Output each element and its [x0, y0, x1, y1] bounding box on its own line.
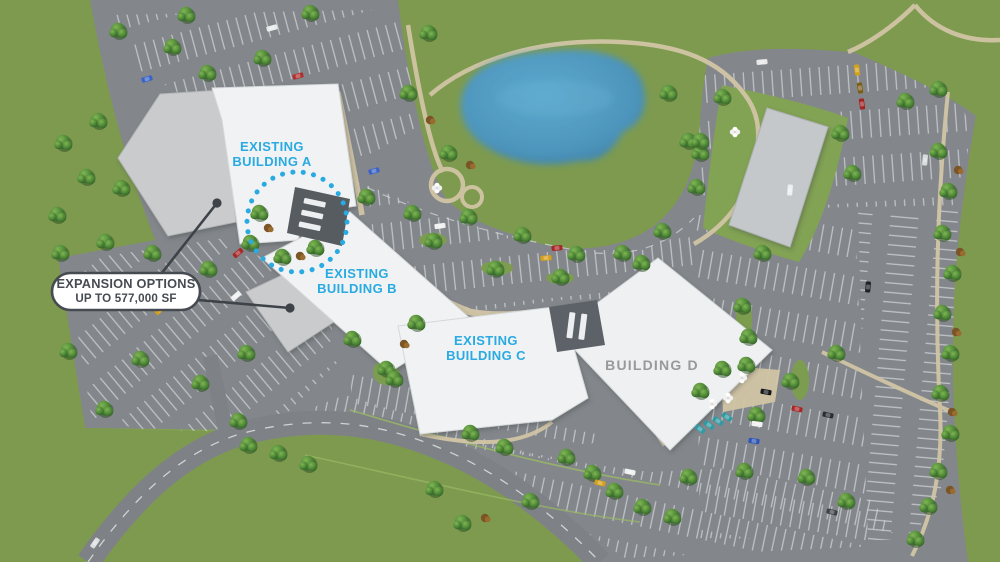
- building-c-label-line1: EXISTING: [454, 333, 518, 348]
- building-a-label: EXISTING BUILDING A: [232, 139, 312, 169]
- callout-subtitle: UP TO 577,000 SF: [75, 292, 176, 305]
- building-b-label: EXISTING BUILDING B: [317, 266, 397, 296]
- building-d-label: BUILDING D: [605, 357, 699, 373]
- callout-endpoint-dot-2: [285, 303, 294, 312]
- loading-dock-cd: [549, 300, 605, 352]
- callout-endpoint-dot-1: [212, 198, 221, 207]
- building-b-label-line2: BUILDING B: [317, 281, 397, 296]
- building-c-label: EXISTING BUILDING C: [446, 333, 526, 363]
- building-c-label-line2: BUILDING C: [446, 348, 526, 363]
- callout-title: EXPANSION OPTIONS: [57, 276, 196, 291]
- building-a-label-line2: BUILDING A: [232, 154, 312, 169]
- building-b-label-line1: EXISTING: [325, 266, 389, 281]
- building-a-label-line1: EXISTING: [240, 139, 304, 154]
- site-plan-map: EXISTING BUILDING A EXISTING BUILDING B …: [0, 0, 1000, 562]
